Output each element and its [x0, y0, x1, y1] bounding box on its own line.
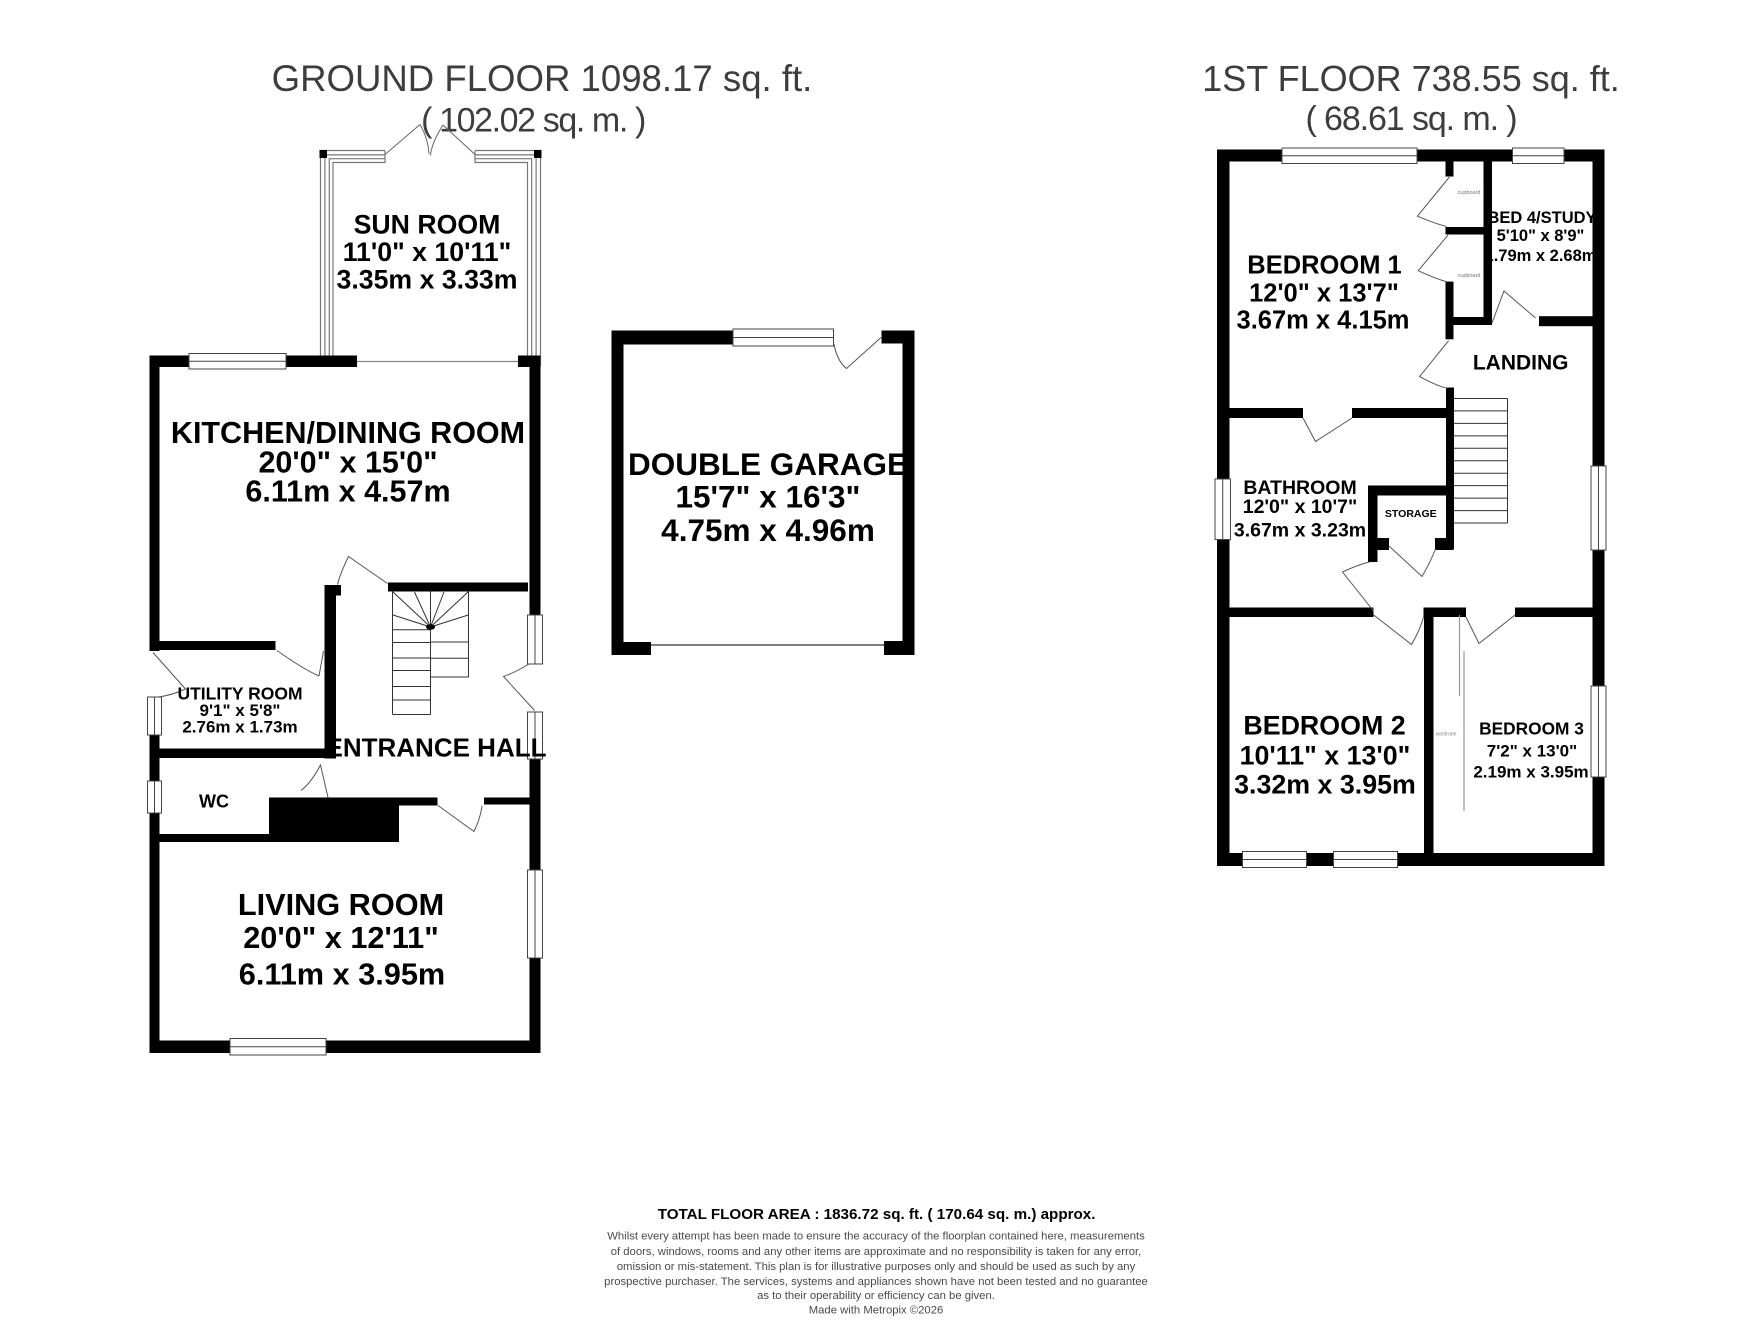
svg-text:Made with Metropix ©2026: Made with Metropix ©2026 [809, 1305, 944, 1317]
svg-text:1.79m x 2.68m: 1.79m x 2.68m [1485, 247, 1597, 265]
svg-text:12'0" x 13'7": 12'0" x 13'7" [1249, 280, 1399, 308]
svg-text:LIVING ROOM: LIVING ROOM [238, 887, 444, 922]
svg-text:6.11m x 4.57m: 6.11m x 4.57m [245, 475, 450, 509]
svg-text:BED 4/STUDY: BED 4/STUDY [1487, 209, 1596, 227]
svg-text:5'10" x 8'9": 5'10" x 8'9" [1497, 227, 1585, 245]
svg-text:( 68.61 sq. m. ): ( 68.61 sq. m. ) [1305, 100, 1516, 138]
svg-text:GROUND FLOOR 1098.17 sq. ft.: GROUND FLOOR 1098.17 sq. ft. [272, 58, 813, 99]
svg-text:3.67m x 4.15m: 3.67m x 4.15m [1237, 307, 1410, 335]
svg-text:2.19m x 3.95m: 2.19m x 3.95m [1473, 763, 1588, 782]
svg-text:STORAGE: STORAGE [1385, 508, 1437, 520]
svg-text:ENTRANCE HALL: ENTRANCE HALL [326, 733, 547, 763]
svg-text:7'2" x 13'0": 7'2" x 13'0" [1487, 742, 1577, 761]
svg-text:wardrobe: wardrobe [1436, 732, 1457, 738]
svg-text:BEDROOM 1: BEDROOM 1 [1247, 252, 1401, 280]
svg-text:3.67m x 3.23m: 3.67m x 3.23m [1234, 520, 1366, 542]
svg-text:WC: WC [199, 792, 229, 812]
svg-text:cupboard: cupboard [1458, 190, 1481, 196]
svg-text:LANDING: LANDING [1473, 352, 1569, 375]
svg-text:as to their operability or eff: as to their operability or efficiency ca… [757, 1290, 995, 1302]
svg-text:3.35m x 3.33m: 3.35m x 3.33m [336, 265, 517, 295]
svg-text:omission or mis-statement. Thi: omission or mis-statement. This plan is … [617, 1261, 1136, 1273]
svg-text:2.76m x 1.73m: 2.76m x 1.73m [182, 718, 297, 737]
svg-text:SUN ROOM: SUN ROOM [354, 210, 501, 240]
svg-text:6.11m x 3.95m: 6.11m x 3.95m [239, 957, 445, 992]
svg-text:1ST FLOOR 738.55 sq. ft.: 1ST FLOOR 738.55 sq. ft. [1202, 58, 1620, 99]
svg-text:11'0" x 10'11": 11'0" x 10'11" [343, 237, 512, 267]
svg-text:TOTAL FLOOR AREA : 1836.72 sq.: TOTAL FLOOR AREA : 1836.72 sq. ft. ( 170… [658, 1206, 1096, 1223]
svg-text:10'11" x 13'0": 10'11" x 13'0" [1240, 741, 1411, 771]
svg-text:4.75m x 4.96m: 4.75m x 4.96m [661, 512, 875, 548]
svg-text:3.32m x 3.95m: 3.32m x 3.95m [1234, 770, 1416, 800]
svg-text:prospective purchaser. The ser: prospective purchaser. The services, sys… [604, 1276, 1148, 1288]
svg-text:cupboard: cupboard [1458, 273, 1481, 279]
svg-text:20'0" x 12'11": 20'0" x 12'11" [243, 920, 439, 955]
svg-text:15'7" x 16'3": 15'7" x 16'3" [676, 479, 861, 515]
svg-text:BEDROOM 2: BEDROOM 2 [1243, 711, 1405, 741]
svg-text:Whilst every attempt has been: Whilst every attempt has been made to en… [607, 1231, 1145, 1243]
svg-text:DOUBLE GARAGE: DOUBLE GARAGE [628, 446, 908, 482]
svg-text:of doors, windows, rooms and a: of doors, windows, rooms and any other i… [611, 1246, 1142, 1258]
svg-text:BEDROOM 3: BEDROOM 3 [1479, 719, 1584, 739]
svg-text:12'0" x 10'7": 12'0" x 10'7" [1243, 496, 1358, 518]
svg-text:( 102.02 sq. m. ): ( 102.02 sq. m. ) [421, 102, 645, 140]
